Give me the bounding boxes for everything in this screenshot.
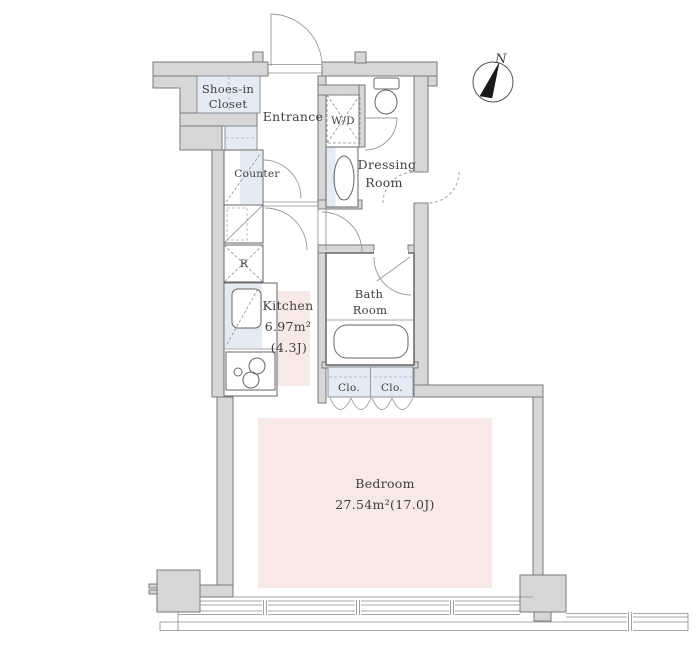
toilet-bowl xyxy=(375,90,397,114)
dressing-room-label-line2: Room xyxy=(365,175,403,190)
closet-left-label: Clo. xyxy=(338,382,360,394)
refrigerator-label: R xyxy=(240,258,249,270)
balcony-window-lines xyxy=(160,599,688,632)
hall-door-arc xyxy=(265,208,307,250)
wall-left-mid xyxy=(212,150,224,397)
entrance-pillar-left xyxy=(253,52,263,62)
entrance-pillar-right xyxy=(355,52,366,63)
wall-column-connector xyxy=(198,585,233,597)
closet-door-arc xyxy=(330,398,351,410)
window-tick xyxy=(262,599,268,616)
entrance-label: Entrance xyxy=(263,109,323,124)
closet-door-arc xyxy=(351,398,371,410)
compass: N xyxy=(473,52,513,102)
column-bottom-right-notch xyxy=(534,612,551,621)
bathroom-label-line2: Room xyxy=(353,303,388,317)
entrance-door-arc xyxy=(270,14,322,66)
dressing-room-label-line1: Dressing xyxy=(358,157,417,172)
window-tick xyxy=(449,599,455,616)
closet-right-label: Clo. xyxy=(381,382,403,394)
floor-plan-svg: N Shoes-in Closet Entrance W/D Dressing … xyxy=(0,0,700,650)
bathroom-label-line1: Bath xyxy=(355,287,384,301)
wall-bath-left xyxy=(318,245,326,403)
column-tab xyxy=(149,590,157,594)
wall-bedroom-right xyxy=(533,397,543,577)
floor-plan: N Shoes-in Closet Entrance W/D Dressing … xyxy=(0,0,700,650)
service-door-arc-outer xyxy=(428,172,459,203)
kitchen-area-label: 6.97m² xyxy=(265,319,312,334)
counter-label: Counter xyxy=(234,168,280,180)
toilet-door-arc xyxy=(365,118,397,150)
wall-bath-top-right xyxy=(408,245,414,253)
compass-needle-icon xyxy=(480,63,499,98)
wall-top-left xyxy=(153,62,268,76)
wall-left-step xyxy=(180,126,222,150)
window-tick xyxy=(355,599,361,616)
toilet-tank xyxy=(374,78,399,89)
shoes-closet-label-line1: Shoes-in xyxy=(202,82,255,96)
shoes-closet-label-line2: Closet xyxy=(209,97,248,111)
window-tick xyxy=(627,612,633,632)
bath-door-opening xyxy=(374,250,408,256)
wall-under-shoes-closet xyxy=(180,113,257,126)
wall-left-top xyxy=(153,76,197,113)
bedroom-area-label: 27.54m²(17.0J) xyxy=(335,497,434,512)
column-bottom-left xyxy=(157,570,200,612)
kitchen-tatami-label: (4.3J) xyxy=(271,340,307,355)
kitchen-label: Kitchen xyxy=(263,298,314,313)
washer-dryer-label: W/D xyxy=(331,115,355,127)
wall-bedroom-top-right xyxy=(414,385,543,397)
bedroom-label: Bedroom xyxy=(355,476,415,491)
wall-left-lower xyxy=(217,397,233,587)
wall-top-right xyxy=(322,62,437,76)
compass-north-label: N xyxy=(494,52,507,67)
wall-wd-niche-top xyxy=(318,85,362,95)
wall-hall-partition xyxy=(318,76,326,207)
column-bottom-right xyxy=(520,575,566,612)
closet-door-arc xyxy=(372,398,392,410)
column-tab xyxy=(149,584,157,588)
closet-door-arc xyxy=(392,398,413,410)
